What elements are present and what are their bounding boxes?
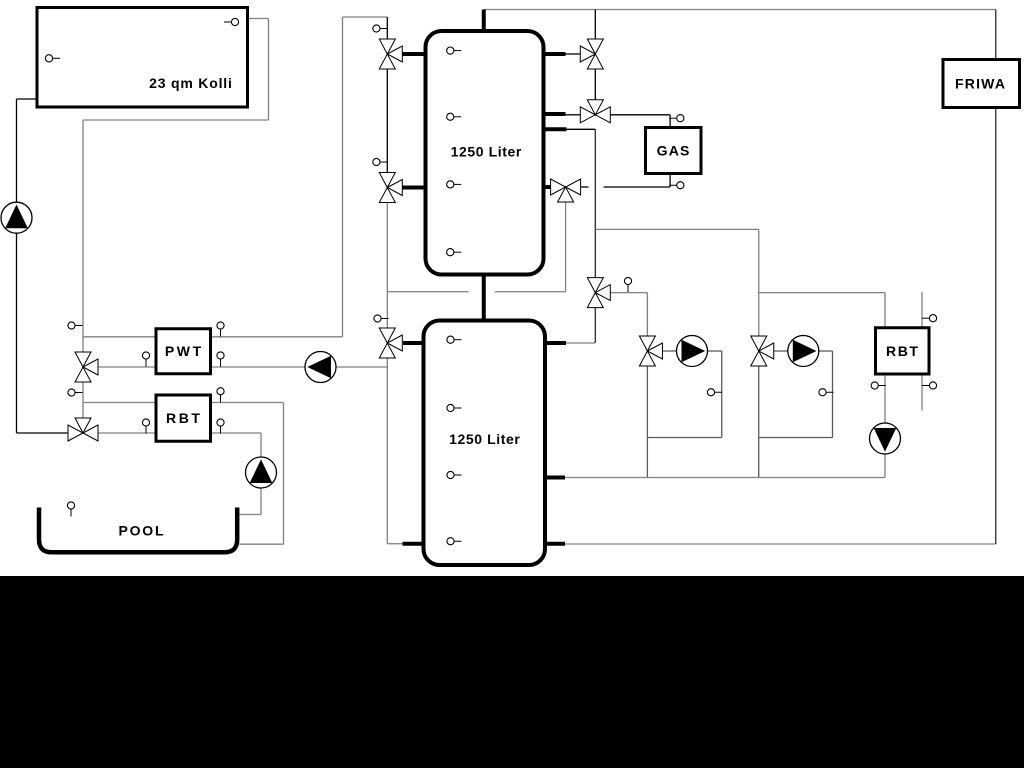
- svg-text:RBT: RBT: [166, 410, 203, 426]
- svg-text:RBT: RBT: [886, 343, 920, 359]
- svg-text:GAS: GAS: [657, 143, 691, 159]
- svg-text:POOL: POOL: [118, 523, 165, 539]
- svg-text:1250 Liter: 1250 Liter: [451, 144, 522, 160]
- svg-text:1250 Liter: 1250 Liter: [449, 431, 520, 447]
- svg-text:FRIWA: FRIWA: [955, 76, 1006, 92]
- svg-text:PWT: PWT: [165, 343, 204, 359]
- svg-text:23 qm Kolli: 23 qm Kolli: [149, 75, 232, 91]
